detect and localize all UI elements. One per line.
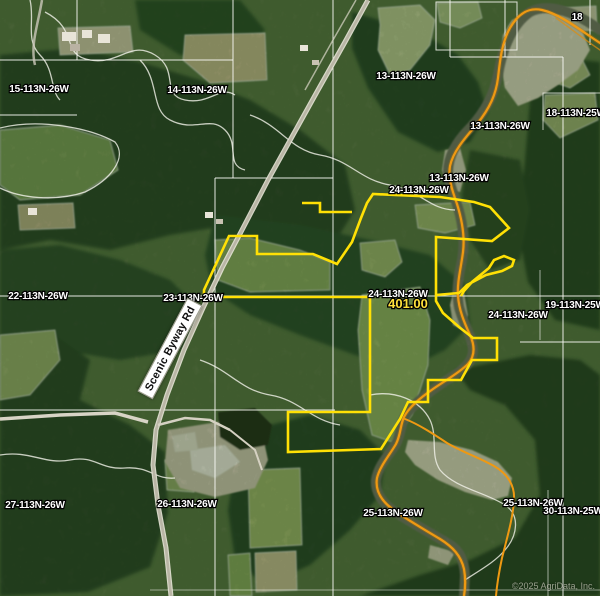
parcel-acreage-label: 401.00 (388, 296, 428, 311)
section-label: 22-113N-26W (8, 291, 68, 302)
section-label: 26-113N-26W (157, 499, 217, 510)
section-label: 15-113N-26W (9, 84, 69, 95)
building (205, 212, 213, 218)
section-label: 24-113N-26W (488, 310, 548, 321)
building (98, 34, 110, 43)
section-label: 27-113N-26W (5, 500, 65, 511)
section-label: 19-113N-25W (545, 300, 600, 311)
section-label: 18 (572, 12, 583, 23)
section-label: 30-113N-25W (543, 506, 600, 517)
building (70, 44, 80, 51)
building (28, 208, 37, 215)
section-label: 24-113N-26W (389, 185, 449, 196)
section-label: 13-113N-26W (470, 121, 530, 132)
section-label: 13-113N-26W (429, 173, 489, 184)
building (216, 219, 223, 224)
building (82, 30, 92, 38)
section-label: 14-113N-26W (167, 85, 227, 96)
watermark: ©2025 AgriData, Inc. (512, 581, 595, 591)
aerial-parcel-map: 15-113N-26W14-113N-26W13-113N-26W13-113N… (0, 0, 600, 596)
section-label: 13-113N-26W (376, 71, 436, 82)
map-canvas: 15-113N-26W14-113N-26W13-113N-26W13-113N… (0, 0, 600, 596)
building (300, 45, 308, 51)
section-label: 25-113N-26W (363, 508, 423, 519)
building (312, 60, 319, 65)
section-label: 18-113N-25W (546, 108, 600, 119)
building (62, 32, 76, 41)
